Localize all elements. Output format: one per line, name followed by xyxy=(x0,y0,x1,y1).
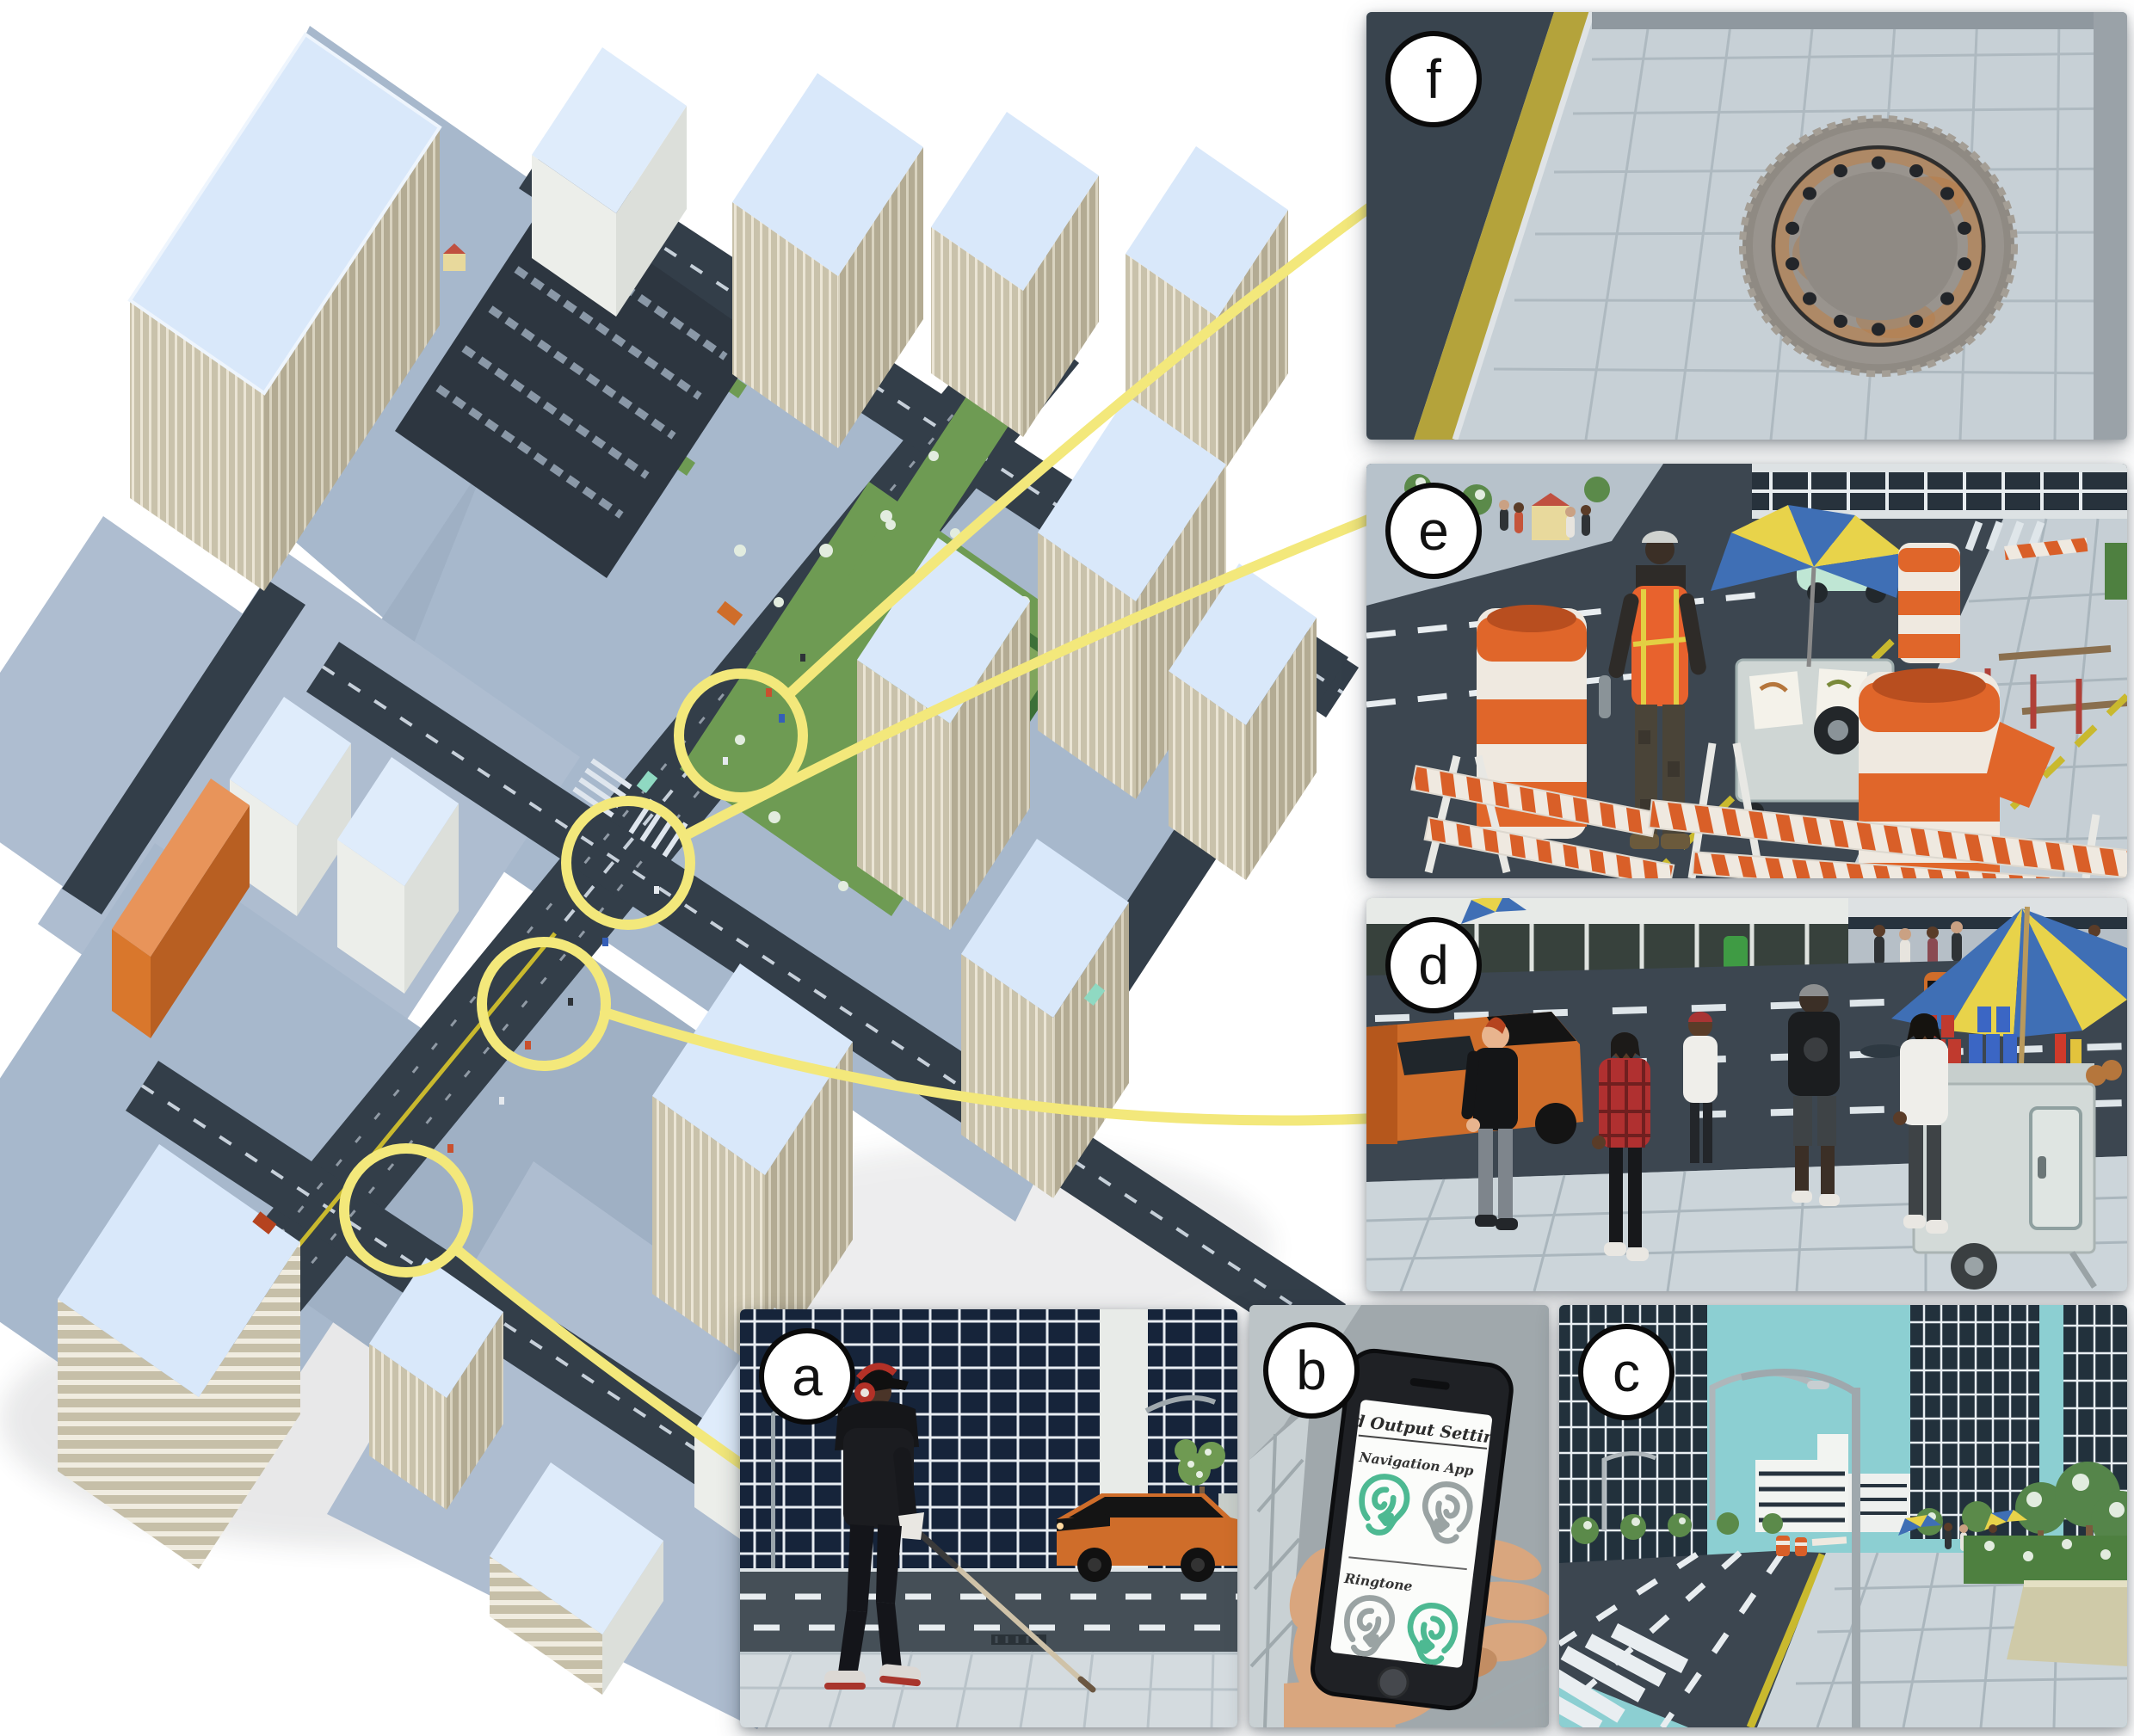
panel-f-manhole-view: f xyxy=(1366,12,2127,440)
road xyxy=(740,1569,1237,1652)
panel-label-a: a xyxy=(759,1328,855,1425)
panel-e-construction-view: e xyxy=(1366,464,2127,878)
panel-label-f: f xyxy=(1385,31,1482,127)
figure-canvas: f xyxy=(0,0,2134,1736)
panel-b-phone-view: Sound Output Setting Navigation App Ring… xyxy=(1249,1305,1549,1727)
panel-c-street-view: c xyxy=(1559,1305,2127,1727)
panel-label-d: d xyxy=(1385,917,1482,1013)
foreground-lamp-pole xyxy=(1852,1388,1860,1727)
panel-d-pedestrians-view: d xyxy=(1366,898,2127,1291)
panel-label-b: b xyxy=(1263,1322,1360,1419)
panel-a-cane-user-view: a xyxy=(740,1309,1237,1727)
panel-label-c: c xyxy=(1578,1324,1675,1420)
manhole-cover xyxy=(1742,118,2014,373)
panel-label-e: e xyxy=(1385,483,1482,579)
